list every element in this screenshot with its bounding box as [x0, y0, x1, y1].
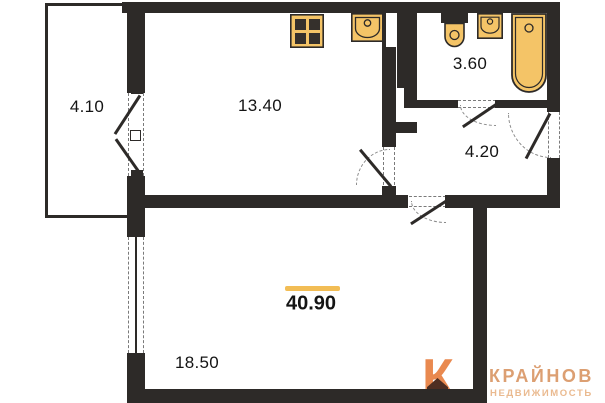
wall-kitchen-living: [145, 195, 408, 208]
stove-icon: [290, 14, 324, 48]
brand-tagline: НЕДВИЖИМОСТЬ: [490, 388, 593, 399]
window-cap-bottom: [127, 353, 145, 360]
hallway-area-label: 4.20: [465, 142, 499, 162]
floor-plan: 4.10 13.40 3.60 4.20 18.50 40.90 К КРАЙН…: [0, 0, 605, 403]
kitchen-area-label: 13.40: [238, 96, 282, 116]
wall-right-upper: [547, 2, 560, 112]
total-area-label: 40.90: [286, 293, 336, 316]
bathtub-icon: [511, 13, 547, 93]
wall-left-mid: [127, 176, 145, 233]
wall-kitchen-right-strip: [382, 13, 386, 51]
toilet-icon: [441, 13, 468, 48]
window-cap-top: [127, 230, 145, 237]
balcony-wall-bottom: [45, 215, 127, 218]
brand-name: КРАЙНОВ: [489, 366, 594, 387]
kitchen-sink-icon: [351, 13, 384, 42]
duct-stub: [393, 122, 417, 133]
window-glass-line: [135, 237, 137, 353]
wall-hall-bottom: [446, 195, 560, 208]
wall-bottom: [127, 389, 487, 403]
washbasin-icon: [477, 13, 503, 39]
balcony-door-handle: [130, 130, 141, 141]
balcony-door-jamb-top: [131, 88, 143, 94]
bathroom-area-label: 3.60: [453, 54, 487, 74]
wall-bath-bottom-right: [495, 100, 547, 108]
wall-left-bottom: [127, 359, 145, 389]
living-area-label: 18.50: [175, 353, 219, 373]
wall-top: [122, 2, 560, 13]
wall-bath-left: [397, 13, 417, 88]
wall-left-top: [127, 2, 145, 93]
wall-living-right: [473, 195, 487, 403]
wall-kitchen-door-jamb: [382, 186, 396, 208]
total-area-accent-line: [285, 286, 340, 291]
wall-bath-bottom-left: [413, 100, 458, 108]
balcony-wall-top: [45, 3, 127, 6]
balcony-wall-left: [45, 3, 48, 218]
balcony-area-label: 4.10: [70, 97, 104, 117]
